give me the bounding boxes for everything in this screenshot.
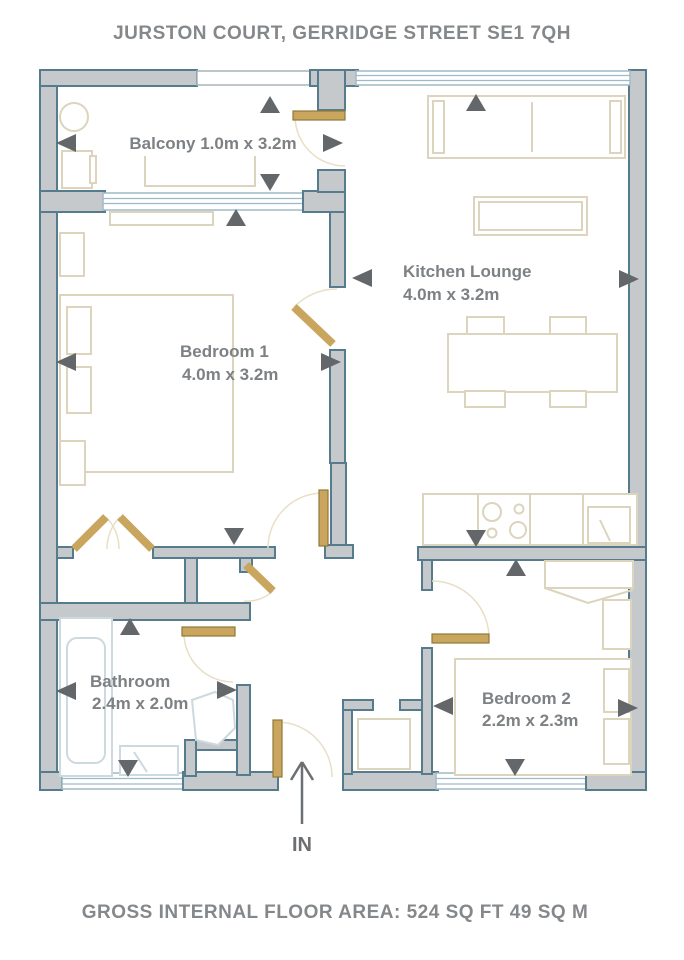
- utility-closet-door: [244, 565, 273, 601]
- chair: [467, 317, 504, 335]
- nightstand: [60, 233, 84, 276]
- entry-closet-box: [358, 719, 410, 769]
- floor-area-footer: GROSS INTERNAL FLOOR AREA: 524 SQ FT 49 …: [82, 902, 589, 923]
- bathroom-dims: 2.4m x 2.0m: [92, 694, 188, 713]
- floor-plan: JURSTON COURT, GERRIDGE STREET SE1 7QH G…: [0, 0, 684, 960]
- bathroom-label: Bathroom: [90, 672, 170, 691]
- balcony-label: Balcony 1.0m x 3.2m: [129, 134, 296, 153]
- balcony-table: [60, 103, 88, 131]
- bedroom2-door: [432, 581, 489, 643]
- floor-plan-page: JURSTON COURT, GERRIDGE STREET SE1 7QH G…: [0, 0, 684, 960]
- bedroom1-label: Bedroom 1: [180, 342, 269, 361]
- sofa: [428, 96, 625, 158]
- side-table: [603, 600, 631, 649]
- pillow: [604, 719, 629, 764]
- pillow: [67, 307, 91, 354]
- wardrobe: [545, 561, 633, 588]
- bedroom2-label: Bedroom 2: [482, 689, 571, 708]
- kitchen-window: [356, 71, 630, 85]
- kitchen-lounge-dims: 4.0m x 3.2m: [403, 285, 499, 304]
- wardrobe-double-doors: [74, 517, 152, 549]
- dining-table: [448, 334, 617, 392]
- sink-icon: [588, 507, 630, 543]
- balcony-chair: [62, 151, 92, 188]
- bedroom1-window: [103, 193, 305, 210]
- bedroom1-door: [294, 289, 337, 344]
- chair: [550, 317, 586, 335]
- hall-door: [268, 490, 328, 548]
- shelf: [110, 212, 213, 225]
- pillow: [67, 367, 91, 413]
- nightstand: [60, 441, 85, 485]
- page-title: JURSTON COURT, GERRIDGE STREET SE1 7QH: [113, 23, 571, 44]
- bedroom1-dims: 4.0m x 3.2m: [182, 365, 278, 384]
- bedroom2-dims: 2.2m x 2.3m: [482, 711, 578, 730]
- entrance-marker: IN: [291, 762, 313, 856]
- kitchen-lounge-label: Kitchen Lounge: [403, 262, 531, 281]
- balcony-railing: [197, 71, 310, 85]
- toilet: [192, 692, 235, 745]
- kitchen-counter: [423, 494, 637, 545]
- kitchen-lounge-furniture: [423, 96, 637, 545]
- bathroom-door: [182, 627, 235, 682]
- in-label: IN: [292, 834, 312, 856]
- balcony-kitchen-door: [293, 111, 345, 166]
- chair: [550, 391, 586, 407]
- balcony-bench: [145, 156, 255, 186]
- chair: [465, 391, 505, 407]
- in-arrow-icon: [291, 762, 313, 824]
- bedroom2-furniture: [358, 561, 633, 775]
